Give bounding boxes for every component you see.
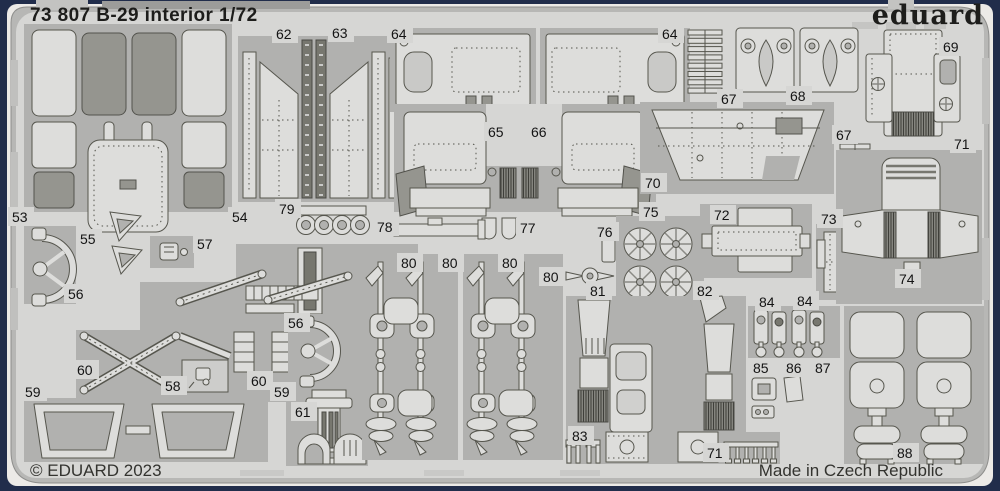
part-group-59 <box>24 398 268 462</box>
etched-shape <box>792 310 806 344</box>
pe-sheet-scan: 5354555656575859596060616263646465666767… <box>0 0 1000 491</box>
part-label-59: 59 <box>274 384 290 400</box>
etched-shape <box>184 172 224 208</box>
etched-shape <box>917 362 971 408</box>
pe-sheet-graphic: 5354555656575859596060616263646465666767… <box>0 0 1000 491</box>
etched-shape <box>921 426 967 443</box>
etched-shape <box>80 386 88 394</box>
etched-shape <box>754 447 757 460</box>
part-label-56: 56 <box>68 286 84 302</box>
part-label-83: 83 <box>572 428 588 444</box>
etched-shape <box>924 444 964 459</box>
etched-shape <box>704 402 734 430</box>
etched-shape <box>424 470 464 476</box>
part-group-65-66 <box>394 104 656 216</box>
part-label-55: 55 <box>80 231 96 247</box>
part-label-88: 88 <box>897 445 913 461</box>
sheet-title: 73 807 B-29 interior 1/72 <box>30 5 258 27</box>
etched-shape <box>562 208 632 216</box>
part-label-72: 72 <box>714 207 730 223</box>
part-label-64: 64 <box>662 26 678 42</box>
etched-shape <box>706 374 732 400</box>
etched-shape <box>617 390 645 414</box>
etched-shape <box>580 358 608 388</box>
etched-shape <box>11 152 18 208</box>
part-label-58: 58 <box>165 378 181 394</box>
etched-shape <box>44 412 114 450</box>
etched-shape <box>648 52 676 92</box>
part-label-54: 54 <box>232 209 248 225</box>
etched-shape <box>410 188 490 208</box>
part-label-82: 82 <box>697 283 713 299</box>
etched-shape <box>935 408 953 416</box>
etched-shape <box>320 221 329 230</box>
etched-shape <box>754 310 768 344</box>
part-label-69: 69 <box>943 39 959 55</box>
etched-shape <box>775 318 783 326</box>
part-label-65: 65 <box>488 124 504 140</box>
etched-shape <box>264 296 272 304</box>
etched-shape <box>32 294 46 306</box>
part-label-85: 85 <box>753 360 769 376</box>
part-group-58 <box>182 360 228 392</box>
etched-shape <box>567 445 571 463</box>
etched-shape <box>842 210 978 258</box>
etched-shape <box>33 262 47 276</box>
etched-shape <box>892 112 934 136</box>
etched-shape <box>813 318 821 326</box>
etched-shape <box>312 390 346 398</box>
part-label-66: 66 <box>531 124 547 140</box>
etched-shape <box>485 298 519 324</box>
etched-shape <box>763 447 766 460</box>
etched-shape <box>558 188 638 208</box>
part-label-73: 73 <box>821 211 837 227</box>
etched-shape <box>398 390 432 416</box>
etched-shape <box>240 470 284 476</box>
etched-shape <box>384 298 418 324</box>
etched-shape <box>356 221 365 230</box>
etched-shape <box>736 447 739 460</box>
etched-shape <box>576 445 580 463</box>
etched-shape <box>673 279 680 286</box>
etched-shape <box>917 312 971 358</box>
part-label-67: 67 <box>836 127 852 143</box>
etched-shape <box>817 240 825 268</box>
etched-shape <box>578 300 610 356</box>
etched-shape <box>854 426 900 443</box>
etched-shape <box>809 43 815 49</box>
part-label-57: 57 <box>197 236 213 252</box>
etched-shape <box>296 206 366 215</box>
etched-shape <box>704 324 734 372</box>
etched-shape <box>637 279 644 286</box>
etched-shape <box>404 52 432 92</box>
eduard-logo: eduard <box>872 0 984 31</box>
etched-shape <box>762 156 800 180</box>
etched-shape <box>606 432 648 462</box>
etched-shape <box>578 390 608 422</box>
part-label-79: 79 <box>279 201 295 217</box>
etched-shape <box>329 412 333 448</box>
part-label-78: 78 <box>377 219 393 235</box>
part-label-80: 80 <box>543 269 559 285</box>
etched-shape <box>258 270 266 278</box>
etched-shape <box>735 459 741 463</box>
part-group-53 <box>24 24 232 232</box>
part-label-61: 61 <box>295 404 311 420</box>
part-label-60: 60 <box>77 362 93 378</box>
part-label-74: 74 <box>899 271 915 287</box>
etched-shape <box>32 228 46 240</box>
etched-shape <box>884 212 896 258</box>
etched-shape <box>800 234 810 248</box>
etched-shape <box>500 168 516 198</box>
etched-shape <box>304 252 316 310</box>
part-label-59: 59 <box>25 384 41 400</box>
part-label-62: 62 <box>276 26 292 42</box>
etched-shape <box>522 168 538 198</box>
part-label-80: 80 <box>502 255 518 271</box>
etched-shape <box>394 224 482 236</box>
etched-shape <box>845 43 851 49</box>
etched-shape <box>857 444 897 459</box>
etched-shape <box>587 273 593 279</box>
etched-shape <box>32 30 76 116</box>
etched-shape <box>928 212 940 258</box>
etched-shape <box>756 347 766 357</box>
part-label-70: 70 <box>645 175 661 191</box>
etched-shape <box>502 218 516 239</box>
part-label-64: 64 <box>391 26 407 42</box>
copyright-text: © EDUARD 2023 <box>30 461 162 481</box>
part-group-70 <box>640 102 834 194</box>
etched-shape <box>181 249 188 256</box>
part-label-63: 63 <box>332 25 348 41</box>
etched-shape <box>300 376 314 387</box>
part-label-84: 84 <box>759 294 775 310</box>
etched-shape <box>616 352 646 380</box>
etched-shape <box>11 60 18 106</box>
part-label-81: 81 <box>590 283 606 299</box>
etched-shape <box>850 362 904 408</box>
etched-shape <box>338 221 347 230</box>
part-label-56: 56 <box>288 315 304 331</box>
etched-shape <box>712 226 802 256</box>
etched-shape <box>772 312 786 344</box>
part-label-84: 84 <box>797 293 813 309</box>
etched-shape <box>940 60 956 84</box>
etched-shape <box>795 316 803 324</box>
etched-shape <box>756 410 761 415</box>
etched-shape <box>673 241 680 248</box>
etched-shape <box>126 426 150 434</box>
part-label-87: 87 <box>815 360 831 376</box>
etched-shape <box>982 58 989 124</box>
part-group-88 <box>844 306 984 464</box>
part-label-76: 76 <box>597 224 613 240</box>
part-group-61 <box>286 388 368 466</box>
etched-shape <box>596 445 600 463</box>
part-label-71: 71 <box>954 136 970 152</box>
etched-shape <box>868 408 886 416</box>
etched-shape <box>781 43 787 49</box>
part-label-86: 86 <box>786 360 802 376</box>
etched-shape <box>416 208 486 216</box>
part-group-57 <box>150 236 194 268</box>
etched-shape <box>120 180 136 189</box>
etched-shape <box>812 347 822 357</box>
etched-shape <box>305 444 323 464</box>
etched-shape <box>939 416 949 426</box>
etched-shape <box>34 172 74 208</box>
etched-shape <box>637 241 644 248</box>
etched-shape <box>302 221 311 230</box>
etched-shape <box>753 459 759 463</box>
etched-shape <box>196 368 210 380</box>
etched-shape <box>301 344 315 358</box>
etched-shape <box>810 312 824 344</box>
etched-shape <box>745 43 751 49</box>
etched-shape <box>745 447 748 460</box>
etched-shape <box>560 470 600 476</box>
part-label-80: 80 <box>401 255 417 271</box>
part-label-80: 80 <box>442 255 458 271</box>
part-group-62-63 <box>238 36 412 202</box>
part-label-68: 68 <box>790 88 806 104</box>
etched-shape <box>428 218 442 225</box>
etched-shape <box>478 220 485 239</box>
etched-shape <box>758 384 770 394</box>
etched-shape <box>203 379 209 385</box>
etched-shape <box>162 412 234 450</box>
etched-shape <box>772 447 775 460</box>
etched-shape <box>172 332 180 340</box>
etched-shape <box>587 445 591 463</box>
etched-shape <box>182 30 226 116</box>
etched-shape <box>850 312 904 358</box>
etched-shape <box>82 33 126 115</box>
etched-shape <box>794 347 804 357</box>
etched-shape <box>344 272 352 280</box>
part-label-75: 75 <box>643 204 659 220</box>
etched-shape <box>872 416 882 426</box>
etched-shape <box>744 459 750 463</box>
etched-shape <box>774 347 784 357</box>
part-label-53: 53 <box>12 209 28 225</box>
etched-shape <box>982 238 989 300</box>
etched-shape <box>182 122 226 168</box>
part-label-71: 71 <box>707 445 723 461</box>
made-in-text: Made in Czech Republic <box>759 461 943 481</box>
part-label-60: 60 <box>251 373 267 389</box>
etched-shape <box>764 410 769 415</box>
etched-shape <box>776 118 802 134</box>
etched-shape <box>80 332 88 340</box>
etched-shape <box>176 298 184 306</box>
etched-shape <box>246 304 294 313</box>
etched-shape <box>11 288 18 330</box>
etched-shape <box>702 234 712 248</box>
etched-shape <box>784 376 803 402</box>
etched-shape <box>132 33 176 115</box>
etched-shape <box>32 122 76 168</box>
part-label-67: 67 <box>721 91 737 107</box>
etched-shape <box>724 442 778 447</box>
etched-shape <box>757 316 765 324</box>
etched-shape <box>499 390 533 416</box>
etched-shape <box>955 459 961 464</box>
part-label-77: 77 <box>520 220 536 236</box>
